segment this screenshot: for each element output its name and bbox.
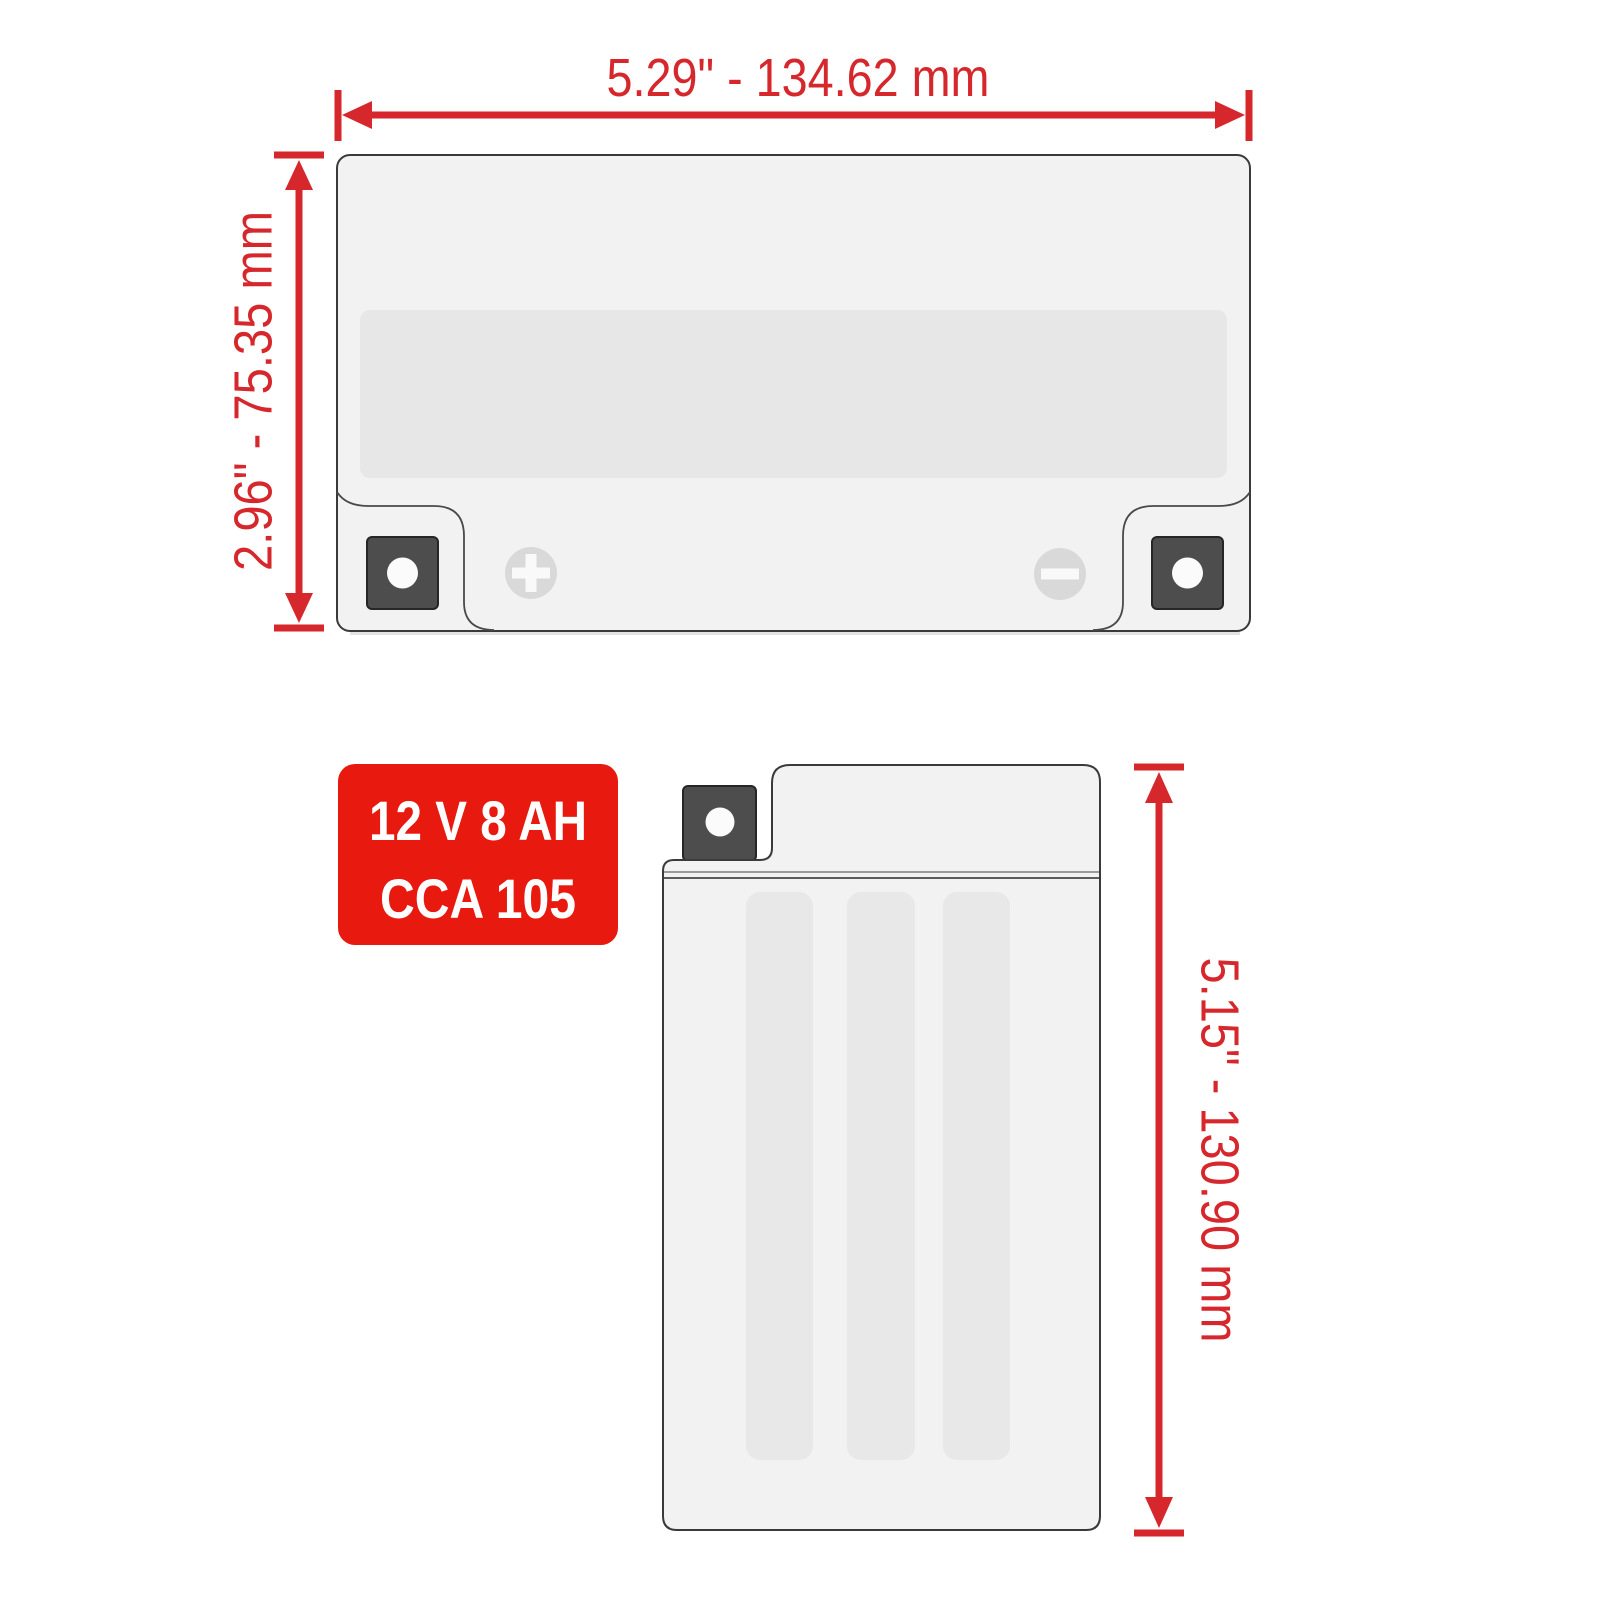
spec-badge-line1: 12 V 8 AH	[369, 789, 587, 852]
front-height-dimension: 2.96" - 75.35 mm	[223, 155, 324, 628]
arrow-down-icon	[285, 593, 313, 623]
side-mount-hole-icon	[706, 808, 735, 837]
arrow-up-icon	[285, 160, 313, 190]
arrow-down-icon	[1145, 1497, 1173, 1528]
front-height-dimension-label: 2.96" - 75.35 mm	[223, 211, 283, 571]
positive-terminal	[505, 547, 557, 599]
arrow-left-icon	[342, 101, 372, 129]
battery-dimensions-diagram: 5.29" - 134.62 mm 2.96" - 75.35 mm 12 V …	[0, 0, 1600, 1600]
side-cell-stripe	[847, 892, 915, 1460]
side-cell-stripe	[746, 892, 813, 1460]
negative-terminal	[1034, 548, 1086, 600]
spec-badge-line2: CCA 105	[380, 867, 576, 930]
front-label-strip	[360, 310, 1227, 478]
diagram-canvas: 5.29" - 134.62 mm 2.96" - 75.35 mm 12 V …	[0, 0, 1600, 1600]
side-height-dimension: 5.15" - 130.90 mm	[1134, 767, 1250, 1533]
side-height-dimension-label: 5.15" - 130.90 mm	[1190, 958, 1250, 1343]
front-view	[337, 155, 1250, 635]
side-cell-stripe	[943, 892, 1010, 1460]
front-right-mount-hole-icon	[1172, 558, 1203, 589]
width-dimension: 5.29" - 134.62 mm	[338, 48, 1249, 141]
width-dimension-label: 5.29" - 134.62 mm	[607, 48, 990, 108]
minus-icon	[1041, 569, 1079, 580]
front-left-mount-hole-icon	[387, 558, 418, 589]
side-view	[663, 765, 1100, 1530]
arrow-right-icon	[1215, 101, 1245, 129]
spec-badge: 12 V 8 AH CCA 105	[338, 764, 618, 945]
plus-icon	[526, 554, 537, 592]
arrow-up-icon	[1145, 772, 1173, 803]
